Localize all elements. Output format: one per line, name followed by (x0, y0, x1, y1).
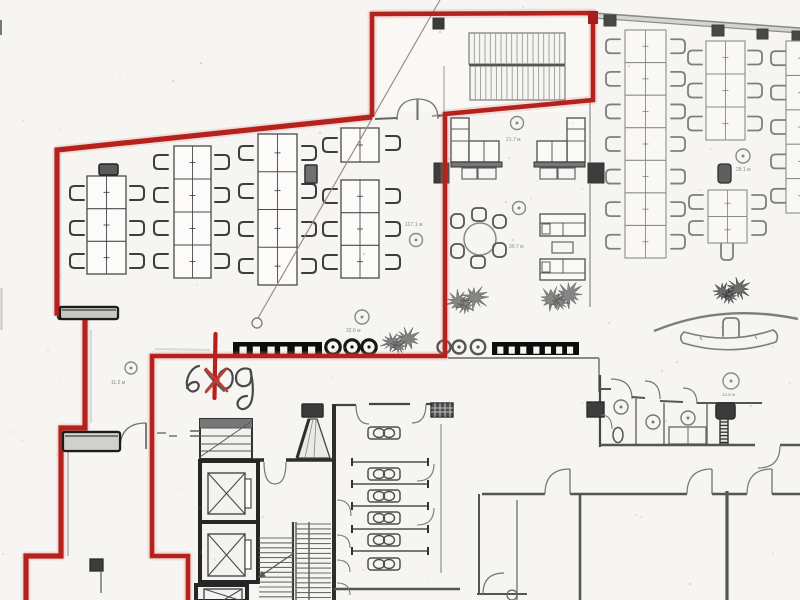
svg-text:11.5 м: 11.5 м (111, 380, 126, 386)
svg-text:117.1 м: 117.1 м (405, 222, 423, 228)
svg-text:28.1 м: 28.1 м (736, 167, 751, 173)
svg-text:14.6 м: 14.6 м (722, 392, 735, 397)
svg-text:32.6 м: 32.6 м (346, 328, 361, 334)
svg-text:30.7 м: 30.7 м (509, 244, 524, 250)
svg-text:21.7 м: 21.7 м (506, 137, 521, 143)
